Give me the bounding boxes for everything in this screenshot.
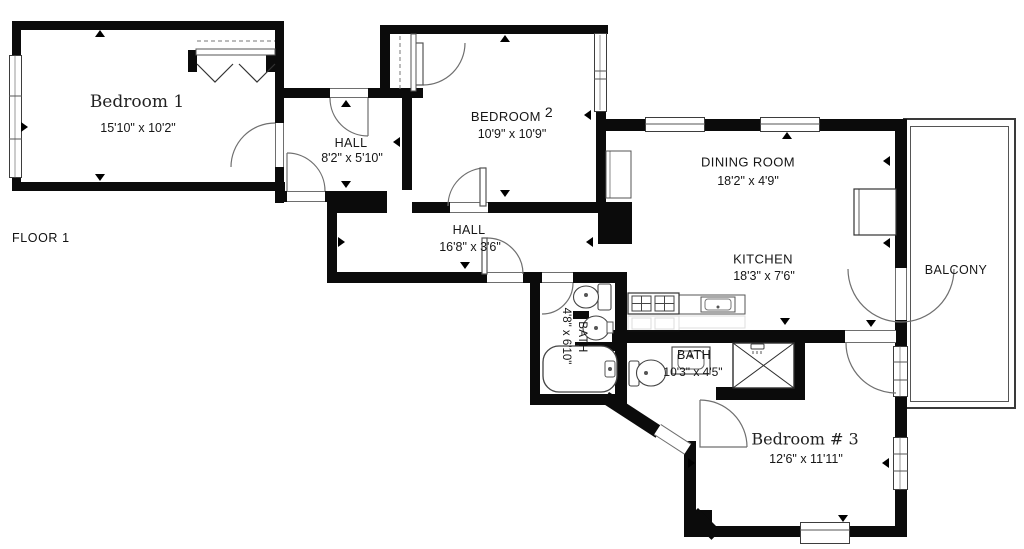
dimension-marker (688, 458, 695, 468)
room-dims-bedroom1: 15'10" x 10'2" (100, 121, 176, 135)
dimension-marker (882, 458, 889, 468)
cabinet-icon (606, 151, 631, 198)
bifold-door (239, 64, 275, 82)
dimension-marker (586, 237, 593, 247)
room-label-dining: DINING ROOM (701, 155, 795, 170)
room-label-bath2: BATH (677, 348, 711, 362)
door-leaf (700, 400, 747, 447)
door-arc (700, 400, 747, 447)
room-dims-bedroom3: 12'6" x 11'11" (769, 452, 843, 466)
room-dims-bedroom2: 10'9" x 10'9" (478, 127, 547, 141)
toilet-icon (629, 360, 666, 386)
room-dims-kitchen: 18'3" x 7'6" (733, 269, 795, 283)
closet-bifold-icon (197, 64, 275, 82)
door-leaf (480, 168, 486, 206)
dimension-marker (341, 100, 351, 107)
room-label-bedroom2: BEDROOM 2 (471, 108, 553, 124)
dimension-marker (95, 174, 105, 181)
dimension-marker (338, 237, 345, 247)
dimension-marker (883, 156, 890, 166)
shower-icon (733, 343, 794, 388)
closet-front (411, 34, 416, 91)
toilet-icon (574, 284, 612, 310)
dimension-marker (393, 137, 400, 147)
room-label-bedroom3: Bedroom # 3 (751, 430, 858, 449)
counter-reflection (628, 316, 745, 331)
room-label-bath1: BATH (576, 321, 588, 352)
door-arc (846, 343, 896, 393)
bathtub-icon (543, 346, 617, 392)
dimension-marker (21, 122, 28, 132)
room-dims-hall1: 8'2" x 5'10" (321, 151, 383, 165)
room-label-hall1: HALL (335, 136, 368, 150)
door-arc (287, 153, 325, 191)
dimension-marker (460, 262, 470, 269)
room-dims-bath1: 4'8" x 6'10" (560, 308, 572, 365)
dimension-marker (866, 320, 876, 327)
closet-shelf (196, 49, 275, 55)
dimension-marker (95, 30, 105, 37)
room-label-bedroom2-number: 2 (545, 104, 553, 120)
room-dims-dining: 18'2" x 4'9" (717, 174, 779, 188)
dimension-marker (341, 181, 351, 188)
dimension-marker (838, 515, 848, 522)
room-label-hall2: HALL (453, 223, 486, 237)
room-label-kitchen: KITCHEN (733, 252, 793, 267)
door-arc (231, 123, 275, 167)
door-arc (423, 43, 465, 85)
dimension-marker (780, 318, 790, 325)
kitchen-sink-icon (701, 297, 735, 312)
room-dims-hall2: 16'8" x 3'6" (439, 240, 501, 254)
room-dims-bath2: 10'3" x 4'5" (663, 365, 722, 379)
dimension-marker (584, 110, 591, 120)
refrigerator-icon (854, 189, 896, 235)
room-label-balcony: BALCONY (925, 263, 988, 277)
dimension-marker (883, 238, 890, 248)
bifold-door (197, 64, 233, 82)
dimension-marker (782, 132, 792, 139)
dimension-marker (500, 190, 510, 197)
room-label-bedroom2-text: BEDROOM (471, 109, 541, 124)
dimension-marker (500, 35, 510, 42)
stove-icon (628, 293, 679, 314)
floorplan: FLOOR 1 Bedroom 1 15'10" x 10'2" HALL 8'… (0, 0, 1024, 549)
floor-label: FLOOR 1 (12, 231, 70, 245)
fixtures-layer (0, 0, 1024, 549)
room-label-bedroom1: Bedroom 1 (90, 92, 184, 112)
kitchen-counter (628, 293, 745, 331)
